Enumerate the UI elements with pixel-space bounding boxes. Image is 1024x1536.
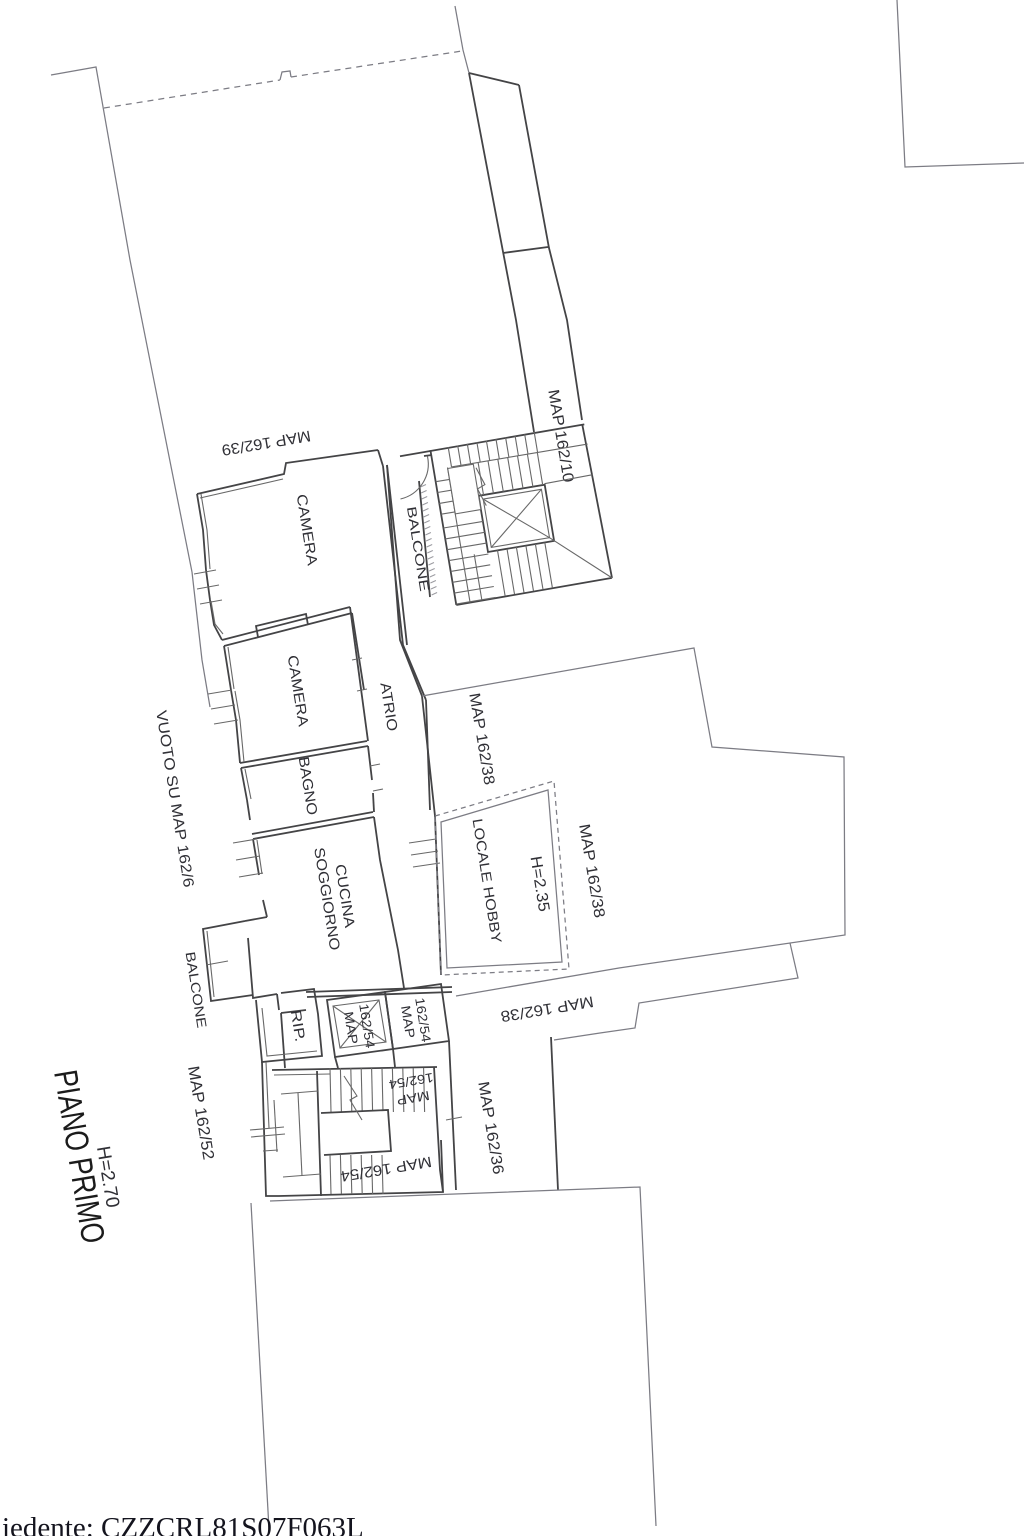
svg-text:iedente: CZZCRL81S07F063L: iedente: CZZCRL81S07F063L [2,1512,364,1536]
